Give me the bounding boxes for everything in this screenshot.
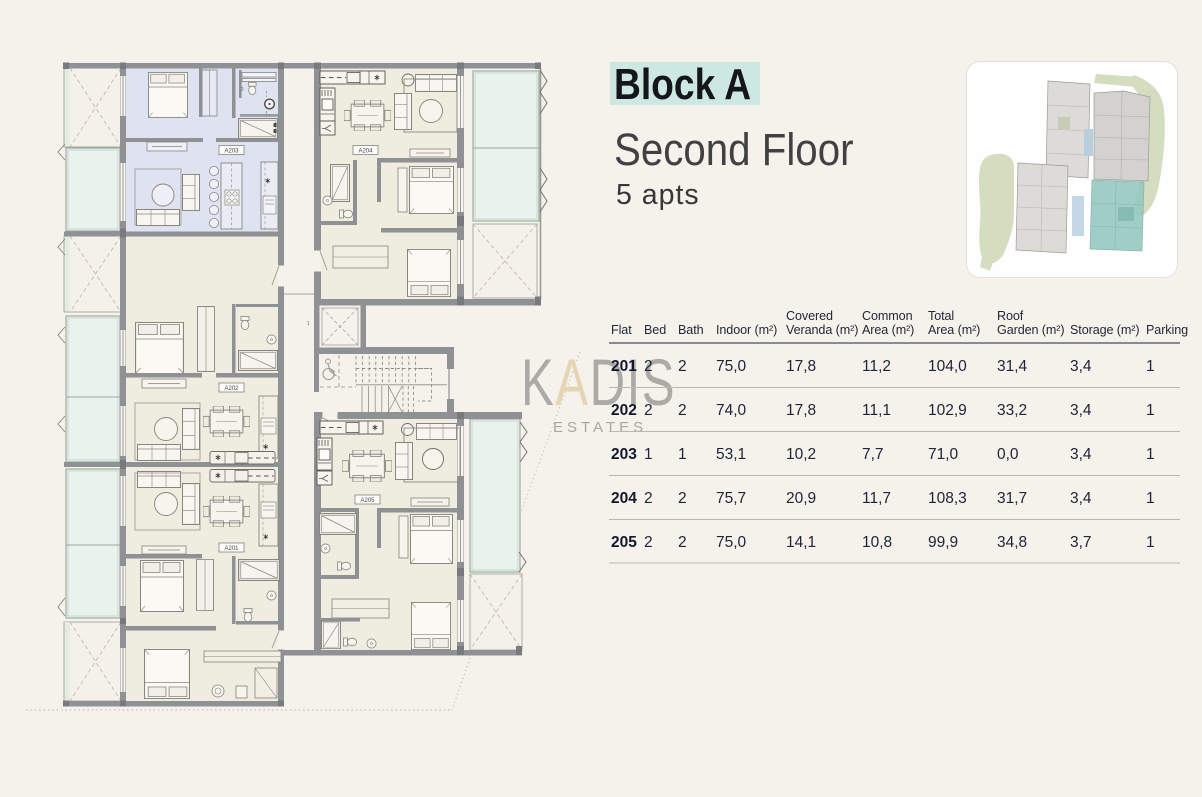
- svg-text:Storage (m²): Storage (m²): [1070, 323, 1139, 337]
- svg-text:1: 1: [1146, 446, 1155, 463]
- svg-text:1: 1: [1146, 358, 1155, 375]
- svg-text:99,9: 99,9: [928, 534, 958, 551]
- svg-text:2: 2: [678, 402, 687, 419]
- svg-text:7,7: 7,7: [862, 446, 884, 463]
- svg-text:20,9: 20,9: [786, 490, 816, 507]
- svg-text:3,4: 3,4: [1070, 402, 1092, 419]
- svg-text:2: 2: [644, 490, 653, 507]
- svg-text:1: 1: [644, 446, 653, 463]
- svg-text:17,8: 17,8: [786, 402, 816, 419]
- svg-text:Area (m²): Area (m²): [928, 323, 980, 337]
- svg-text:1: 1: [678, 446, 687, 463]
- svg-text:75,0: 75,0: [716, 534, 747, 551]
- svg-text:203: 203: [611, 446, 637, 463]
- svg-text:33,2: 33,2: [997, 402, 1027, 419]
- svg-text:1: 1: [1146, 402, 1155, 419]
- svg-text:17,8: 17,8: [786, 358, 816, 375]
- svg-text:2: 2: [678, 490, 687, 507]
- svg-text:1: 1: [1146, 490, 1155, 507]
- svg-text:2: 2: [678, 358, 687, 375]
- svg-text:2: 2: [644, 534, 653, 551]
- svg-text:11,1: 11,1: [862, 402, 891, 419]
- svg-text:Covered: Covered: [786, 309, 833, 323]
- svg-text:3,4: 3,4: [1070, 490, 1092, 507]
- svg-text:Bath: Bath: [678, 323, 704, 337]
- svg-text:Flat: Flat: [611, 323, 632, 337]
- svg-text:71,0: 71,0: [928, 446, 959, 463]
- svg-text:74,0: 74,0: [716, 402, 747, 419]
- svg-text:Veranda (m²): Veranda (m²): [786, 323, 858, 337]
- svg-text:3,4: 3,4: [1070, 446, 1092, 463]
- svg-text:202: 202: [611, 402, 637, 419]
- svg-text:104,0: 104,0: [928, 358, 967, 375]
- svg-text:75,0: 75,0: [716, 358, 747, 375]
- svg-text:53,1: 53,1: [716, 446, 746, 463]
- svg-text:11,7: 11,7: [862, 490, 891, 507]
- svg-text:3,4: 3,4: [1070, 358, 1092, 375]
- svg-text:108,3: 108,3: [928, 490, 967, 507]
- svg-text:Parking: Parking: [1146, 323, 1188, 337]
- svg-text:102,9: 102,9: [928, 402, 967, 419]
- svg-text:204: 204: [611, 490, 637, 507]
- svg-text:14,1: 14,1: [786, 534, 816, 551]
- svg-text:2: 2: [644, 402, 653, 419]
- svg-text:3,7: 3,7: [1070, 534, 1092, 551]
- svg-text:11,2: 11,2: [862, 358, 891, 375]
- svg-text:205: 205: [611, 534, 637, 551]
- svg-text:201: 201: [611, 358, 637, 375]
- svg-text:Area (m²): Area (m²): [862, 323, 914, 337]
- svg-text:Roof: Roof: [997, 309, 1024, 323]
- svg-text:10,2: 10,2: [786, 446, 816, 463]
- svg-text:0,0: 0,0: [997, 446, 1019, 463]
- svg-text:34,8: 34,8: [997, 534, 1027, 551]
- svg-text:2: 2: [678, 534, 687, 551]
- svg-text:1: 1: [1146, 534, 1155, 551]
- svg-text:Total: Total: [928, 309, 954, 323]
- svg-text:75,7: 75,7: [716, 490, 746, 507]
- svg-text:Bed: Bed: [644, 323, 666, 337]
- svg-text:31,7: 31,7: [997, 490, 1027, 507]
- svg-text:Indoor (m²): Indoor (m²): [716, 323, 777, 337]
- svg-text:10,8: 10,8: [862, 534, 892, 551]
- svg-text:31,4: 31,4: [997, 358, 1028, 375]
- svg-text:Common: Common: [862, 309, 913, 323]
- svg-text:2: 2: [644, 358, 653, 375]
- svg-text:Garden (m²): Garden (m²): [997, 323, 1064, 337]
